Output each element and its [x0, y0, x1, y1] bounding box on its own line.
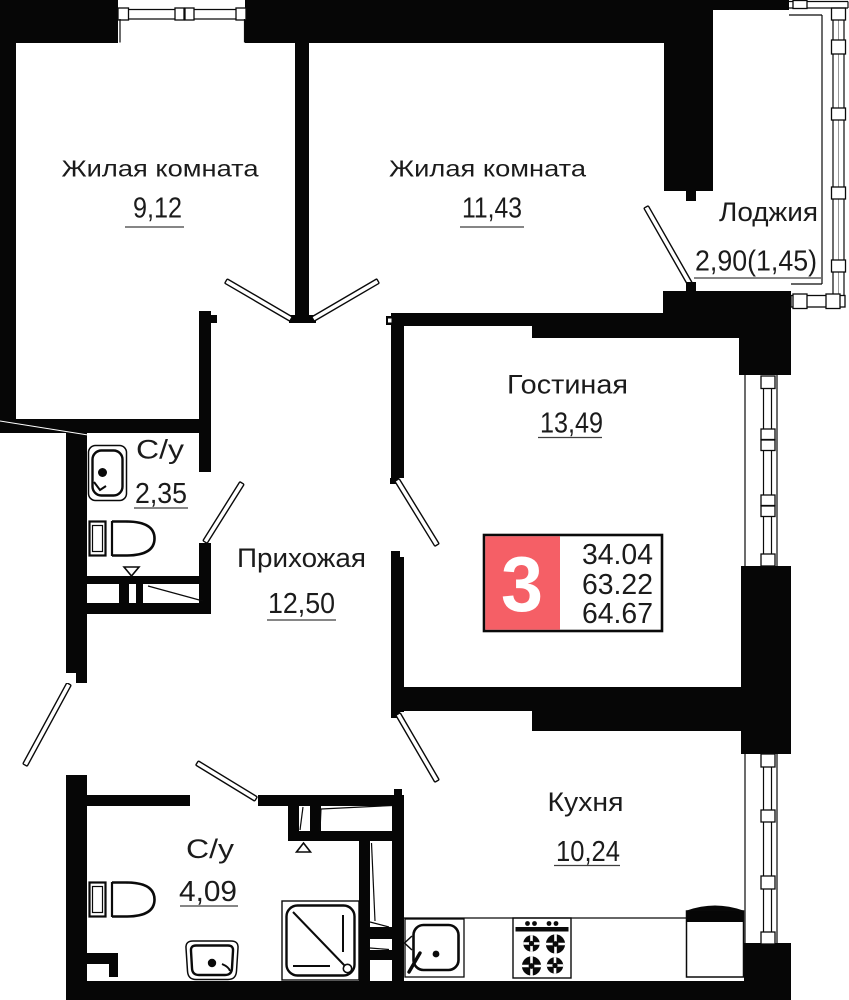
svg-text:С/у: С/у — [136, 435, 185, 465]
svg-text:34.04: 34.04 — [582, 539, 653, 571]
svg-text:Лоджия: Лоджия — [719, 197, 818, 227]
svg-text:64.67: 64.67 — [582, 598, 653, 630]
svg-text:2,90(1,45): 2,90(1,45) — [695, 246, 817, 278]
svg-text:Прихожая: Прихожая — [237, 543, 366, 573]
svg-text:2,35: 2,35 — [135, 478, 187, 510]
svg-text:10,24: 10,24 — [556, 836, 620, 868]
svg-text:13,49: 13,49 — [540, 408, 603, 440]
svg-text:4,09: 4,09 — [179, 876, 237, 908]
svg-text:11,43: 11,43 — [462, 193, 522, 225]
svg-text:Гостиная: Гостиная — [507, 370, 628, 400]
svg-text:Жилая комната: Жилая комната — [389, 156, 587, 182]
svg-text:Жилая комната: Жилая комната — [62, 156, 260, 182]
svg-text:12,50: 12,50 — [268, 588, 335, 620]
svg-text:63.22: 63.22 — [582, 569, 653, 601]
svg-text:3: 3 — [501, 540, 543, 628]
svg-text:Кухня: Кухня — [548, 787, 624, 817]
svg-text:С/у: С/у — [186, 834, 235, 864]
svg-text:9,12: 9,12 — [133, 193, 182, 225]
